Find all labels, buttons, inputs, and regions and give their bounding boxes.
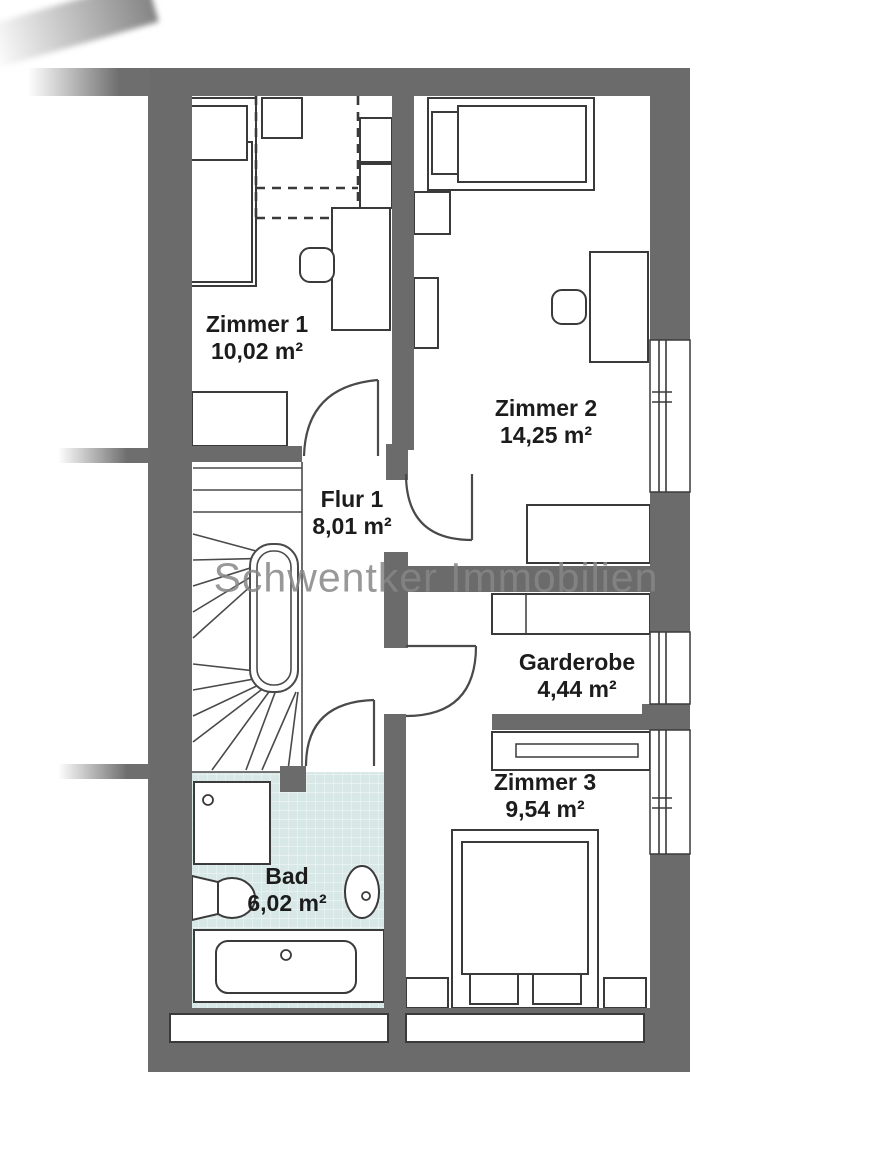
room-name: Garderobe	[519, 649, 635, 676]
room-area: 10,02 m²	[206, 338, 308, 365]
room-name: Flur 1	[312, 486, 391, 513]
zimmer3-nightstand-left	[406, 978, 448, 1008]
room-area: 9,54 m²	[494, 796, 596, 823]
wall-bad-zimmer3	[384, 714, 406, 1008]
wall-garderobe-zimmer3	[492, 714, 650, 730]
floor-plan-page: Zimmer 1 10,02 m² Zimmer 2 14,25 m² Flur…	[0, 0, 870, 1152]
bad-bathtub	[194, 930, 384, 1002]
wall-outer-left	[148, 68, 192, 1072]
room-name: Zimmer 1	[206, 311, 308, 338]
window-bad-bottom	[170, 1014, 388, 1042]
zimmer2-shelf	[414, 278, 438, 348]
door-garderobe	[406, 646, 476, 716]
window-zimmer2	[650, 340, 690, 492]
party-wall-stub-top	[28, 68, 150, 96]
window-zimmer3	[650, 730, 690, 854]
wall-zimmer1-zimmer2	[392, 96, 414, 450]
door-bad	[306, 700, 374, 766]
zimmer1-dresser	[192, 392, 287, 446]
room-label-zimmer1: Zimmer 1 10,02 m²	[206, 311, 308, 365]
bad-toilet	[192, 876, 255, 920]
agency-watermark: Schwentker Immobilien	[214, 555, 659, 602]
zimmer1-cabinet-lower	[360, 164, 392, 208]
room-label-flur1: Flur 1 8,01 m²	[312, 486, 391, 540]
party-wall-stub-lower	[58, 764, 150, 779]
room-label-zimmer2: Zimmer 2 14,25 m²	[495, 395, 597, 449]
room-area: 8,01 m²	[312, 513, 391, 540]
room-name: Bad	[247, 863, 326, 890]
zimmer3-wardrobe	[492, 732, 650, 770]
room-name: Zimmer 2	[495, 395, 597, 422]
zimmer2-nightstand	[414, 192, 450, 234]
room-area: 14,25 m²	[495, 422, 597, 449]
room-name: Zimmer 3	[494, 769, 596, 796]
zimmer2-bed	[428, 98, 594, 190]
wall-stair-block	[280, 766, 306, 792]
staircase	[192, 462, 302, 772]
wall-outer-top	[148, 68, 690, 96]
zimmer1-desk	[332, 208, 390, 330]
zimmer1-cabinet-upper	[360, 118, 392, 162]
window-garderobe	[650, 632, 690, 704]
zimmer1-bed	[182, 98, 256, 286]
zimmer1-shelf	[262, 98, 302, 138]
wall-jamb-flur	[386, 444, 408, 480]
zimmer3-nightstand-right	[604, 978, 646, 1008]
room-area: 6,02 m²	[247, 890, 326, 917]
zimmer3-bed	[452, 830, 598, 1008]
zimmer2-chair	[552, 290, 586, 324]
party-wall-stub-middle	[58, 448, 150, 463]
room-label-zimmer3: Zimmer 3 9,54 m²	[494, 769, 596, 823]
zimmer2-desk	[590, 252, 648, 362]
room-label-garderobe: Garderobe 4,44 m²	[519, 649, 635, 703]
zimmer1-chair	[300, 248, 334, 282]
window-zimmer3-bottom	[406, 1014, 644, 1042]
bad-shower	[194, 782, 270, 864]
door-zimmer1	[304, 380, 378, 456]
bad-sink	[345, 866, 379, 918]
room-area: 4,44 m²	[519, 676, 635, 703]
room-label-bad: Bad 6,02 m²	[247, 863, 326, 917]
wall-zimmer1-flur	[192, 446, 302, 462]
wall-outer-right-upper	[650, 68, 690, 340]
door-zimmer2	[406, 474, 472, 540]
